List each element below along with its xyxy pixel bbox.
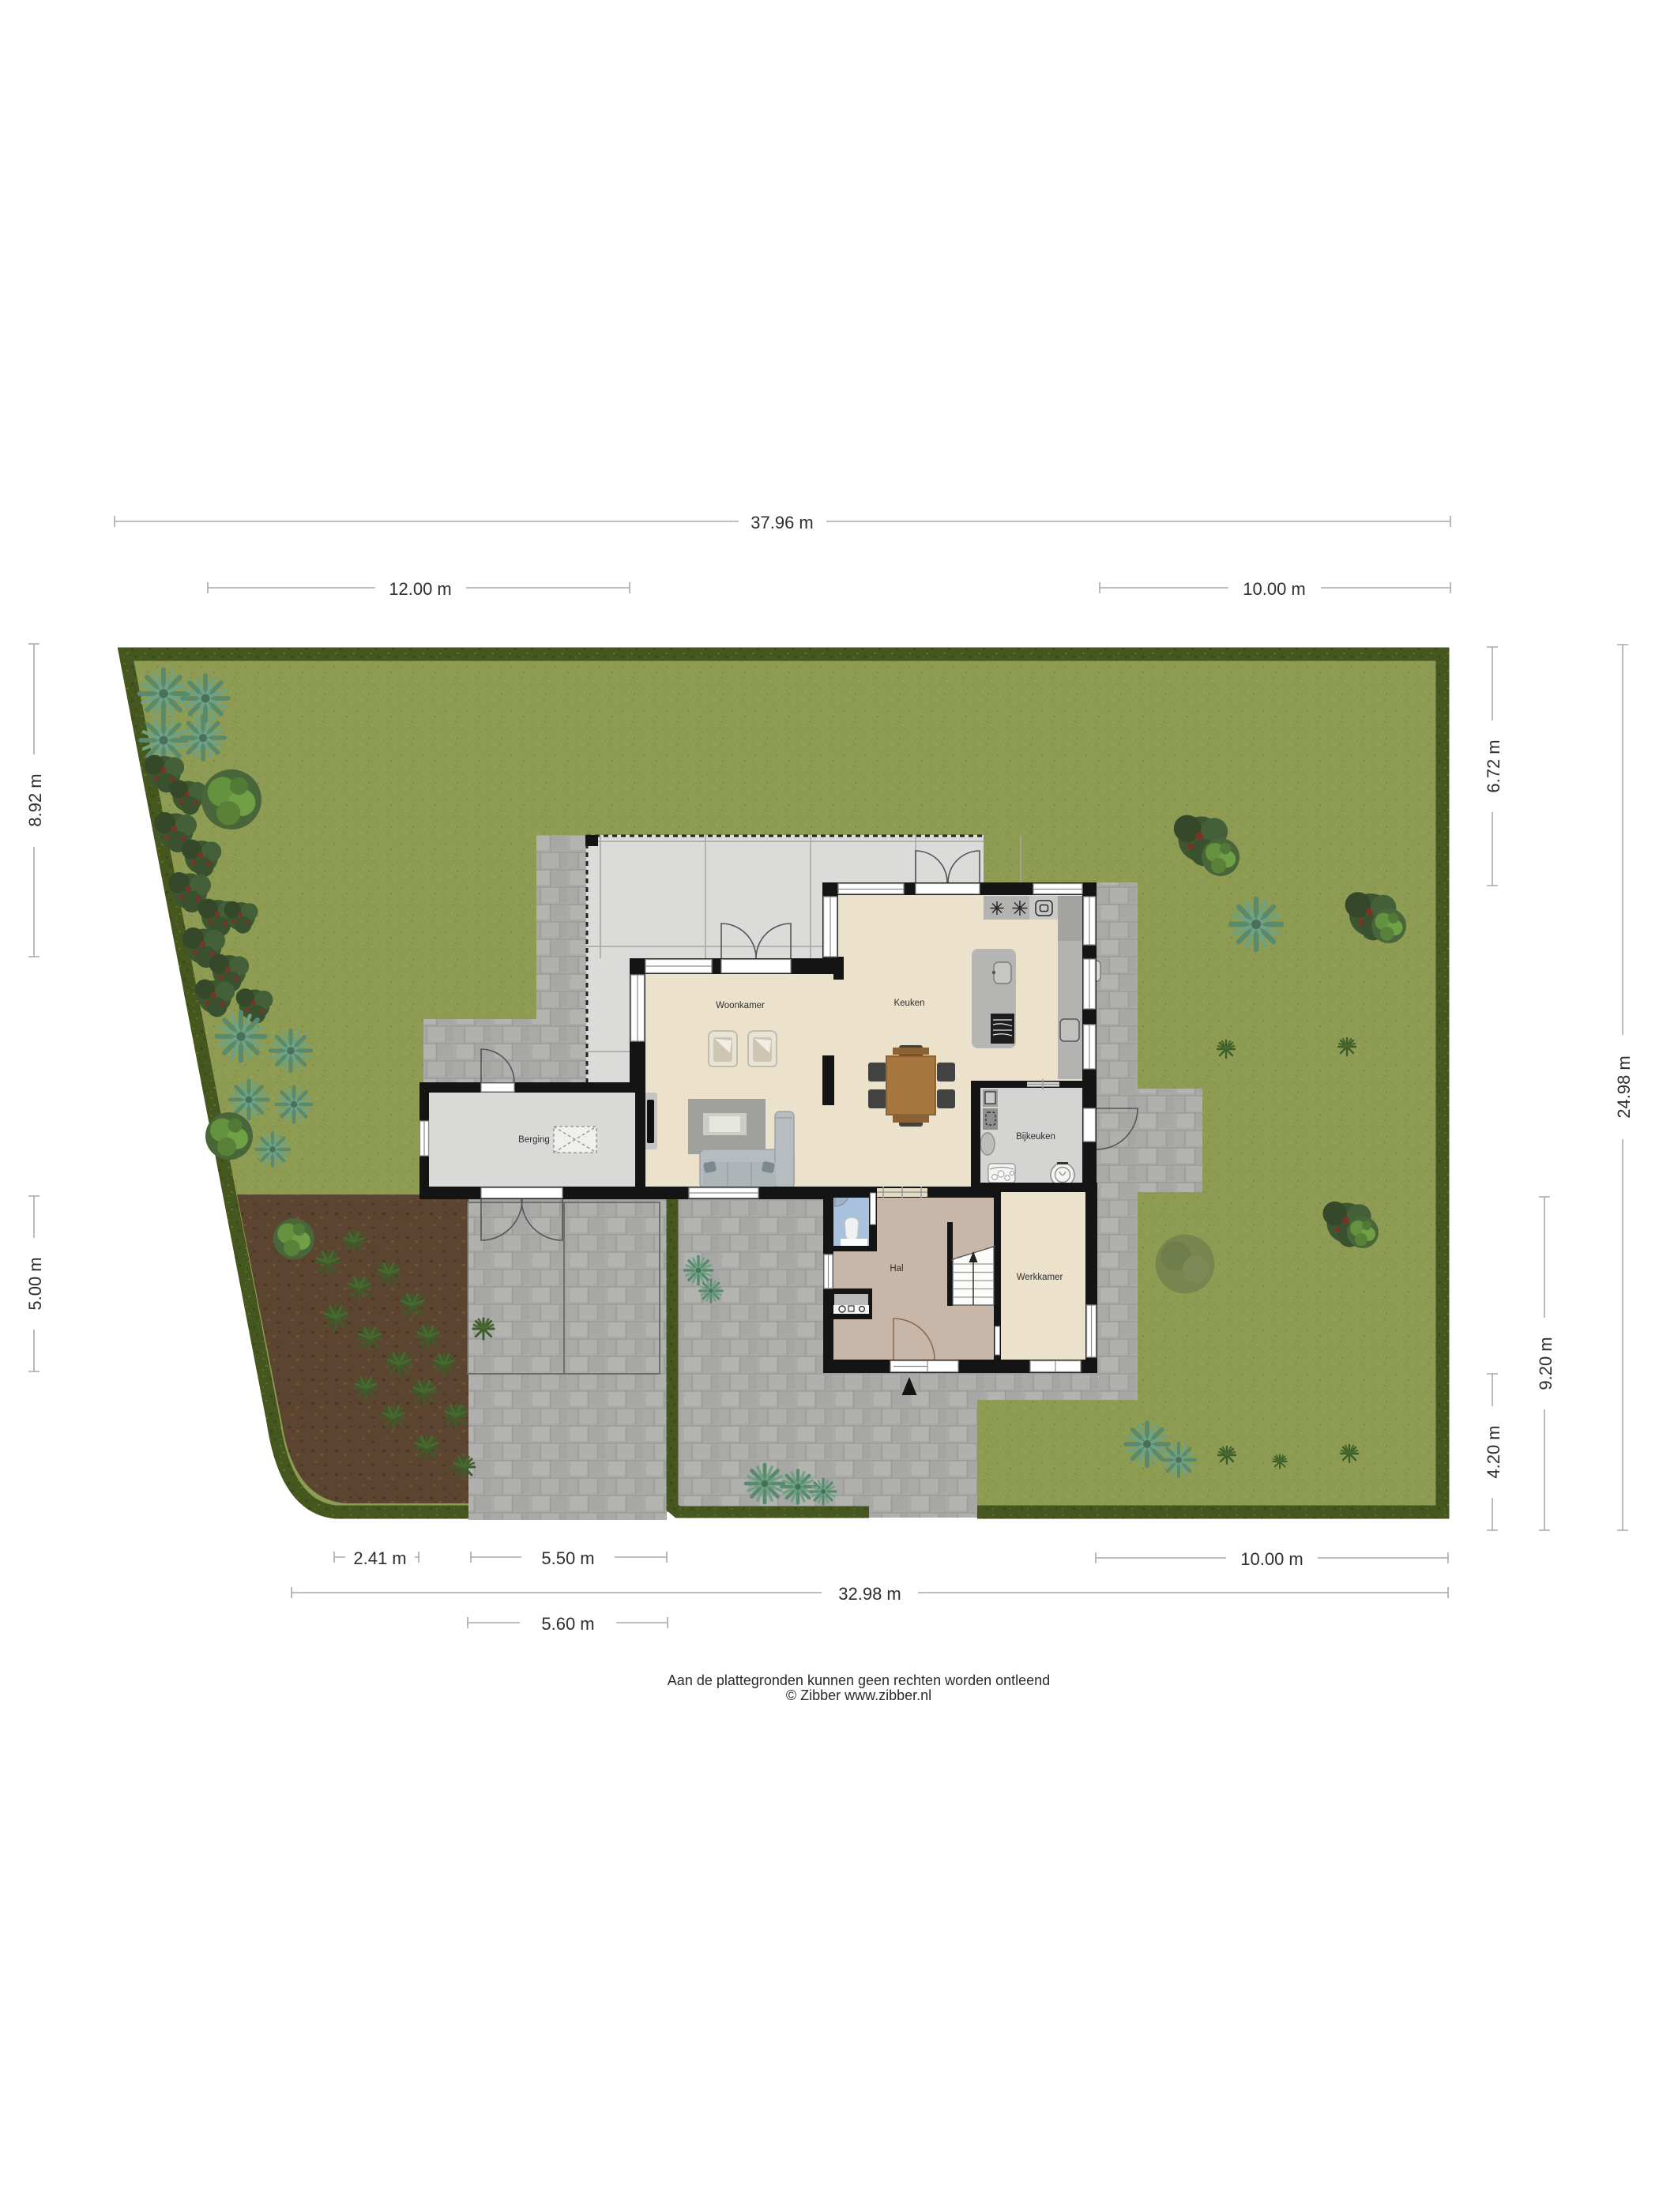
svg-text:4.20 m: 4.20 m: [1484, 1425, 1503, 1478]
svg-text:5.50 m: 5.50 m: [541, 1548, 594, 1568]
svg-text:37.96 m: 37.96 m: [750, 513, 814, 532]
svg-text:10.00 m: 10.00 m: [1243, 579, 1306, 599]
svg-text:5.60 m: 5.60 m: [541, 1614, 594, 1634]
svg-text:Hal: Hal: [890, 1264, 903, 1273]
svg-text:Bijkeuken: Bijkeuken: [1016, 1132, 1055, 1142]
svg-text:Werkkamer: Werkkamer: [1017, 1273, 1063, 1282]
svg-text:9.20 m: 9.20 m: [1536, 1337, 1556, 1390]
svg-text:24.98 m: 24.98 m: [1614, 1055, 1634, 1119]
svg-text:Aan de plattegronden kunnen ge: Aan de plattegronden kunnen geen rechten…: [668, 1672, 1050, 1688]
svg-text:8.92 m: 8.92 m: [25, 773, 45, 826]
svg-text:© Zibber www.zibber.nl: © Zibber www.zibber.nl: [786, 1687, 931, 1703]
svg-text:10.00 m: 10.00 m: [1240, 1549, 1303, 1569]
svg-text:2.41 m: 2.41 m: [353, 1548, 406, 1568]
svg-text:Berging: Berging: [518, 1135, 550, 1145]
svg-text:12.00 m: 12.00 m: [389, 579, 452, 599]
svg-text:32.98 m: 32.98 m: [838, 1584, 901, 1604]
svg-text:5.00 m: 5.00 m: [25, 1257, 45, 1310]
svg-text:Keuken: Keuken: [893, 999, 924, 1008]
svg-text:6.72 m: 6.72 m: [1484, 739, 1503, 792]
svg-text:Woonkamer: Woonkamer: [716, 1001, 765, 1010]
